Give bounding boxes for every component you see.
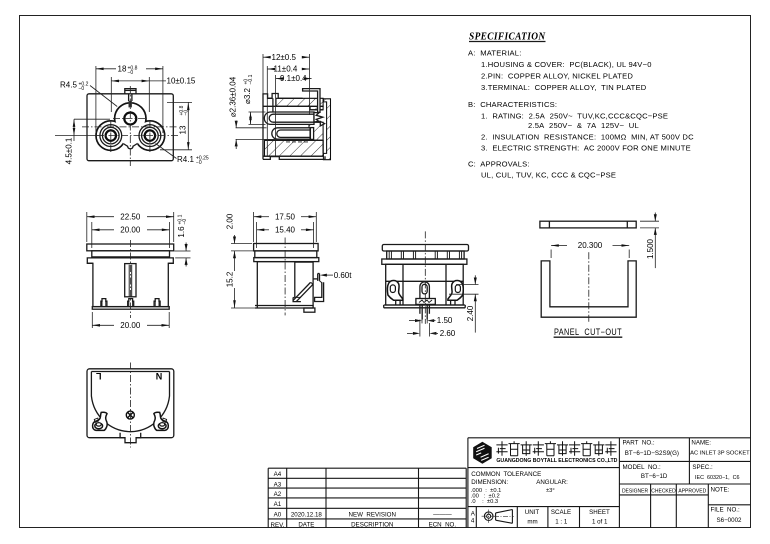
- svg-text:15.40: 15.40: [275, 225, 296, 234]
- svg-text:2020.12.18: 2020.12.18: [291, 511, 323, 518]
- svg-text:2. INSULATION RESISTANCE: 1: 2. INSULATION RESISTANCE: 100MΩ MIN, AT …: [481, 133, 694, 142]
- svg-text:−0: −0: [196, 160, 202, 166]
- svg-text:−0: −0: [128, 70, 134, 76]
- svg-text:UNIT: UNIT: [525, 509, 540, 516]
- svg-text:2.60: 2.60: [440, 329, 456, 338]
- svg-text:1.500: 1.500: [646, 238, 655, 259]
- svg-text:DESCRIPTION: DESCRIPTION: [351, 521, 393, 528]
- svg-text:20.00: 20.00: [120, 225, 141, 234]
- svg-text:———: ———: [433, 511, 452, 518]
- svg-text:1 : 1: 1 : 1: [555, 518, 568, 525]
- svg-text:−0: −0: [182, 219, 188, 225]
- svg-text:COMMON TOLERANCE: COMMON TOLERANCE: [471, 471, 541, 478]
- svg-text:R4.5: R4.5: [60, 81, 77, 90]
- svg-text:22.50: 22.50: [120, 212, 141, 221]
- svg-text:⌀2.36±0.04: ⌀2.36±0.04: [229, 76, 238, 117]
- svg-text:−0: −0: [79, 86, 85, 92]
- svg-text:A3: A3: [274, 481, 282, 488]
- svg-text:S6−0002: S6−0002: [717, 517, 743, 524]
- svg-text:PANEL CUT−OUT: PANEL CUT−OUT: [554, 327, 622, 337]
- svg-text:.0 : ±0.3: .0 : ±0.3: [471, 499, 498, 505]
- svg-text:−0: −0: [184, 110, 190, 116]
- svg-text:20.00: 20.00: [120, 321, 141, 330]
- svg-text:FILE NO.:: FILE NO.:: [711, 507, 741, 514]
- svg-text:C: APPROVALS:: C: APPROVALS:: [468, 160, 530, 169]
- svg-text:B: CHARACTERISTICS:: B: CHARACTERISTICS:: [468, 100, 557, 109]
- svg-text:⌀3.2: ⌀3.2: [243, 87, 252, 103]
- svg-text:11±0.4: 11±0.4: [274, 65, 298, 74]
- svg-text:APPROVED: APPROVED: [678, 488, 706, 494]
- svg-text:REV.: REV.: [271, 522, 285, 529]
- svg-text:18: 18: [118, 65, 127, 74]
- svg-text:1. RATING: 2.5A 250V~ TUV,: 1. RATING: 2.5A 250V~ TUV,KC,CCC&CQC−PSE: [481, 112, 668, 121]
- svg-text:1.6: 1.6: [177, 226, 186, 238]
- svg-text:4: 4: [471, 517, 475, 524]
- svg-text:12±0.5: 12±0.5: [272, 53, 297, 62]
- svg-text:CHECKED: CHECKED: [651, 488, 676, 494]
- svg-text:−0.1: −0.1: [248, 74, 254, 84]
- svg-text:IEC 60320−1, C6: IEC 60320−1, C6: [695, 475, 740, 481]
- svg-text:2.40: 2.40: [466, 305, 475, 321]
- svg-text:1.50: 1.50: [437, 316, 453, 325]
- svg-text:15.2: 15.2: [225, 271, 234, 287]
- svg-text:1.HOUSING & COVER: PC(BLACK),: 1.HOUSING & COVER: PC(BLACK), UL 94V−0: [481, 60, 652, 69]
- svg-text:9.1±0.4: 9.1±0.4: [280, 74, 307, 83]
- svg-text:DESIGNER: DESIGNER: [622, 488, 649, 494]
- svg-text:R4.1: R4.1: [177, 155, 194, 164]
- svg-text:3. ELECTRIC STRENGTH: AC 200: 3. ELECTRIC STRENGTH: AC 2000V FOR ONE M…: [481, 144, 691, 153]
- svg-text:MODEL NO.:: MODEL NO.:: [623, 464, 661, 471]
- svg-text:AC INLET 3P SOCKET: AC INLET 3P SOCKET: [690, 451, 750, 457]
- svg-text:BT−6−1D: BT−6−1D: [641, 473, 668, 480]
- svg-text:N: N: [156, 371, 163, 381]
- svg-text:3.TERMINAL: COPPER ALLOY, TI: 3.TERMINAL: COPPER ALLOY, TIN PLATED: [481, 83, 647, 92]
- svg-text:4.5±0.1: 4.5±0.1: [65, 137, 74, 164]
- svg-text:ECN NO.: ECN NO.: [429, 521, 457, 528]
- svg-text:13: 13: [179, 125, 188, 134]
- svg-text:2.00: 2.00: [225, 213, 234, 229]
- svg-text:1 of 1: 1 of 1: [592, 518, 608, 525]
- svg-text:17.50: 17.50: [275, 212, 296, 221]
- svg-text:SPEC.:: SPEC.:: [692, 464, 713, 471]
- svg-text:2.5A 250V~ & 7A 125V~ UL: 2.5A 250V~ & 7A 125V~ UL: [528, 121, 639, 130]
- svg-text:A: MATERIAL:: A: MATERIAL:: [468, 49, 522, 58]
- svg-text:20.300: 20.300: [578, 241, 603, 250]
- svg-text:BT−6−1D−S2S9(G): BT−6−1D−S2S9(G): [625, 450, 679, 457]
- svg-text:2.PIN: COPPER ALLOY, NICKEL P: 2.PIN: COPPER ALLOY, NICKEL PLATED: [481, 72, 633, 81]
- svg-text:mm: mm: [527, 518, 537, 525]
- svg-text:SHEET: SHEET: [589, 509, 610, 516]
- svg-text:DIMENSION:: DIMENSION:: [471, 479, 508, 486]
- svg-text:GUANGDONG BOYTALL ELECTRONICS: GUANGDONG BOYTALL ELECTRONICS CO.,LTD: [496, 458, 617, 464]
- svg-text:ANGULAR:: ANGULAR:: [536, 479, 568, 486]
- svg-text:A1: A1: [274, 501, 282, 508]
- svg-text:A2: A2: [274, 491, 282, 498]
- svg-text:UL, CUL, TUV, KC, CCC & CQC−PS: UL, CUL, TUV, KC, CCC & CQC−PSE: [481, 171, 616, 180]
- svg-text:DATE: DATE: [298, 521, 314, 528]
- svg-text:PART NO.:: PART NO.:: [623, 439, 655, 446]
- svg-text:NEW REVISION: NEW REVISION: [349, 511, 396, 518]
- svg-text:±3°: ±3°: [546, 488, 555, 494]
- svg-text:NAME:: NAME:: [691, 439, 711, 446]
- svg-text:A0: A0: [274, 511, 282, 518]
- svg-text:10±0.15: 10±0.15: [167, 77, 196, 86]
- svg-text:A4: A4: [274, 471, 282, 478]
- svg-text:L: L: [96, 371, 102, 381]
- svg-text:NOTE:: NOTE:: [711, 487, 730, 494]
- svg-text:SCALE: SCALE: [551, 509, 571, 516]
- svg-text:0.60t: 0.60t: [334, 271, 353, 280]
